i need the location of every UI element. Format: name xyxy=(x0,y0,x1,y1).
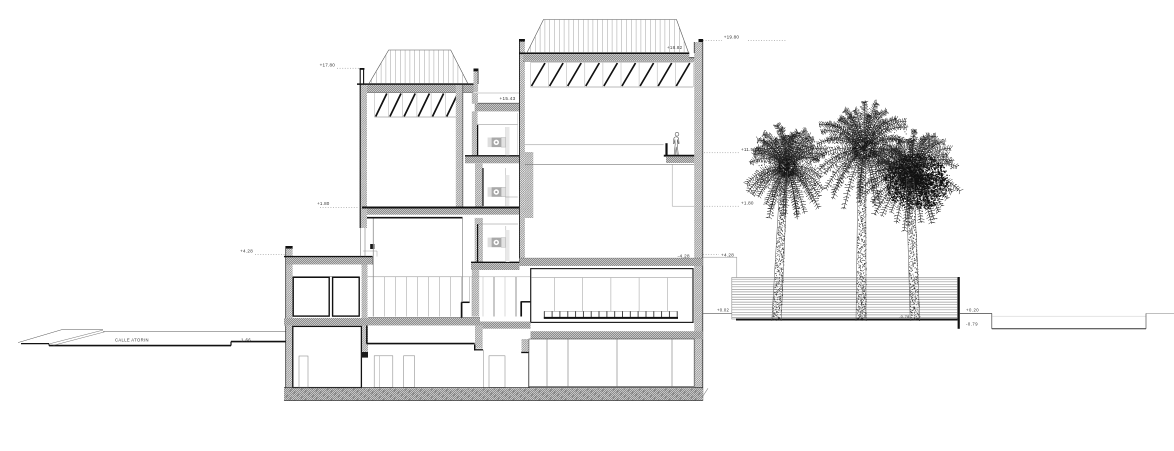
svg-text:+18.82: +18.82 xyxy=(667,45,683,50)
svg-text:1.66: 1.66 xyxy=(241,337,251,342)
svg-text:+15.43: +15.43 xyxy=(500,96,516,101)
svg-text:+17.80: +17.80 xyxy=(320,63,336,68)
svg-text:+1.80: +1.80 xyxy=(317,201,330,206)
svg-text:-0.79: -0.79 xyxy=(966,322,978,327)
svg-text:+4.28: +4.28 xyxy=(721,252,734,257)
svg-text:+19.80: +19.80 xyxy=(724,34,740,39)
svg-text:+0.02: +0.02 xyxy=(717,308,729,313)
svg-text:-0.78: -0.78 xyxy=(899,314,910,319)
svg-text:+4.28: +4.28 xyxy=(240,249,253,254)
svg-text:CALLE ATORIN: CALLE ATORIN xyxy=(115,338,149,343)
svg-text:+0.20: +0.20 xyxy=(966,307,979,312)
svg-text:-4.28: -4.28 xyxy=(678,254,691,259)
svg-text:+1.80: +1.80 xyxy=(741,201,754,206)
